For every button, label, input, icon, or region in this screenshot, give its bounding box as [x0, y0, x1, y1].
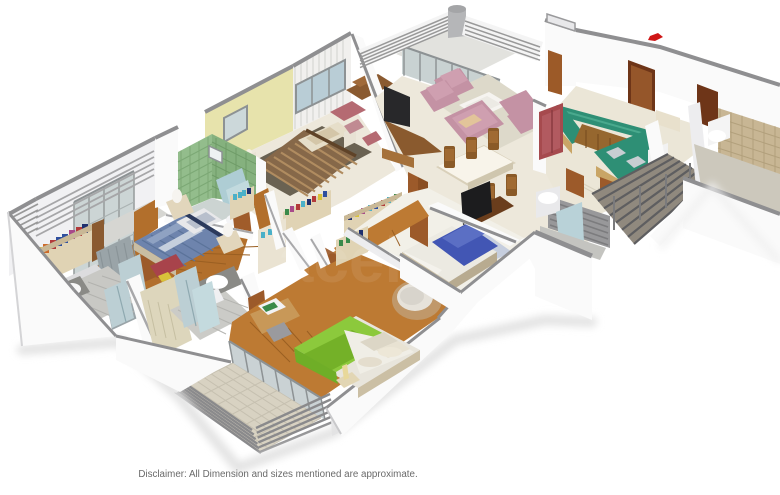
svg-text:Disclaimer: All Dimension and: Disclaimer: All Dimension and sizes ment…	[138, 469, 417, 480]
svg-text:acel: acel	[278, 224, 403, 296]
